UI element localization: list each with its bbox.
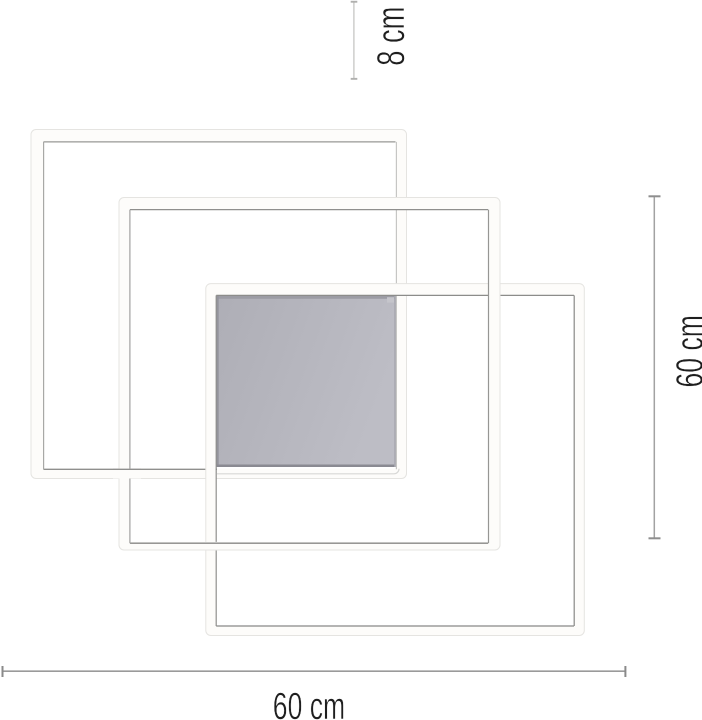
svg-text:8 cm: 8 cm xyxy=(371,7,414,66)
svg-text:60 cm: 60 cm xyxy=(668,315,702,387)
svg-text:60 cm: 60 cm xyxy=(273,684,345,720)
